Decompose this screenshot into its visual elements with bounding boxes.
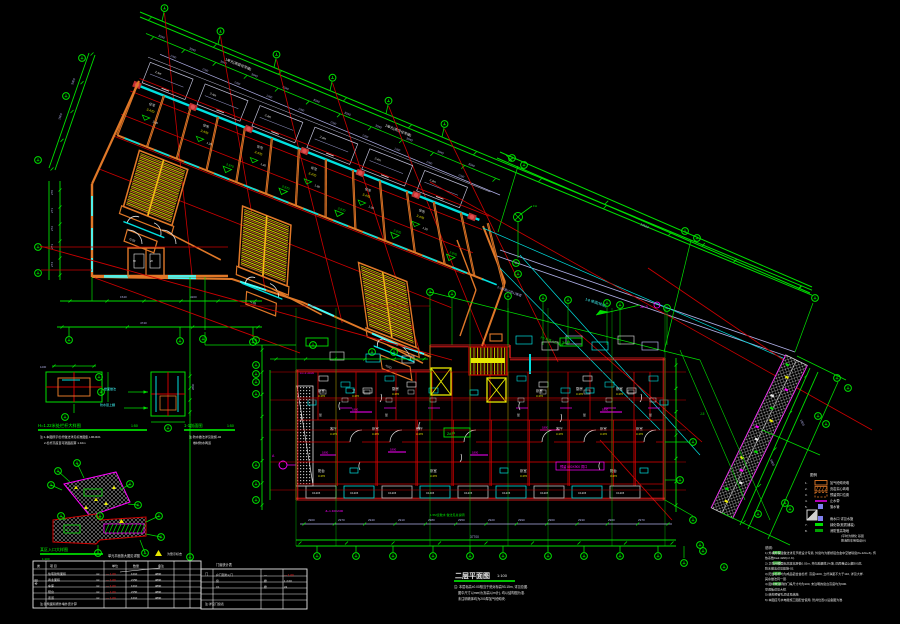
svg-text:JL-1 400x600: JL-1 400x600	[325, 509, 344, 513]
svg-text:3.470: 3.470	[610, 474, 617, 478]
svg-text:窗: 窗	[216, 579, 219, 583]
svg-text:走道: 走道	[48, 595, 54, 600]
svg-text:盥: 盥	[649, 413, 652, 417]
svg-text:卧室: 卧室	[318, 388, 325, 393]
svg-text:厨房: 厨房	[576, 386, 583, 391]
svg-text:图中尺寸以mm计(标高以m计), 均以结构图为准.: 图中尺寸以mm计(标高以m计), 均以结构图为准.	[458, 590, 525, 595]
svg-text:为警示标志: 为警示标志	[167, 551, 182, 556]
svg-text:W: W	[150, 259, 153, 263]
svg-text:阳台: 阳台	[610, 468, 617, 473]
svg-text:3200: 3200	[190, 295, 197, 299]
svg-text:1.: 1.	[805, 481, 808, 485]
svg-text:5) 结构预留孔洞详见结施.: 5) 结构预留孔洞详见结施.	[765, 592, 800, 597]
svg-text:273: 273	[50, 244, 54, 249]
svg-text:说明:: 说明:	[765, 545, 773, 550]
svg-text:商业面积: 商业面积	[48, 577, 60, 582]
svg-text:1540: 1540	[120, 295, 127, 299]
svg-text:3.470: 3.470	[318, 474, 325, 478]
svg-text:雨水口 详见水施: 雨水口 详见水施	[830, 516, 854, 521]
svg-text:3.470: 3.470	[372, 432, 379, 436]
svg-text:m²: m²	[96, 596, 99, 600]
svg-text:防水层上翻: 防水层上翻	[100, 402, 115, 407]
svg-text:— 1.00: — 1.00	[106, 590, 116, 594]
svg-text:户门及防火门: 户门及防火门	[216, 573, 233, 577]
svg-text:—: —	[264, 573, 267, 577]
svg-text:270: 270	[50, 190, 54, 195]
svg-text:4.: 4.	[805, 499, 808, 503]
svg-text:C1215: C1215	[616, 491, 625, 495]
svg-text:盥: 盥	[583, 413, 586, 417]
svg-text:m²: m²	[96, 578, 99, 582]
svg-text:— 1.00: — 1.00	[106, 596, 116, 600]
svg-text:2980: 2980	[428, 518, 435, 522]
svg-text:页岩实心砖墙: 页岩实心砖墙	[830, 486, 850, 491]
svg-text:C1: C1	[216, 585, 220, 589]
svg-text:2) 卫生间楼面标高较本层低0.02m, 并向地漏找1%坡,: 2) 卫生间楼面标高较本层低0.02m, 并向地漏找1%坡, 四周卷边上翻300…	[765, 560, 863, 565]
svg-text:2.栏杆高度自可踏面起算 1.10m: 2.栏杆高度自可踏面起算 1.10m	[44, 440, 86, 445]
svg-text:防水做法详见建施-02.: 防水做法详见建施-02.	[765, 566, 794, 571]
svg-text:卧室: 卧室	[520, 468, 527, 473]
svg-text:2.: 2.	[805, 487, 808, 491]
svg-text:注:详见门窗表: 注:详见门窗表	[205, 601, 224, 606]
svg-text:热系数K≤2.4W/(m²·K).: 热系数K≤2.4W/(m²·K).	[765, 555, 795, 560]
svg-text:1800: 1800	[322, 451, 329, 455]
svg-text:2960: 2960	[548, 518, 555, 522]
svg-text:阳台: 阳台	[48, 589, 54, 594]
svg-text:1-1剖面图: 1-1剖面图	[184, 422, 203, 429]
svg-text:C1215: C1215	[540, 491, 549, 495]
svg-text:1.5M宽散水 做法见总说明: 1.5M宽散水 做法见总说明	[430, 512, 465, 517]
svg-text:2150: 2150	[131, 590, 138, 594]
svg-text:注:防水做法详见建施-02: 注:防水做法详见建施-02	[189, 434, 222, 439]
svg-text:C1215: C1215	[350, 491, 359, 495]
svg-text:1:50: 1:50	[131, 424, 138, 428]
svg-text:盥: 盥	[319, 413, 322, 417]
svg-text:2900: 2900	[608, 518, 615, 522]
svg-text:m²: m²	[96, 584, 99, 588]
svg-text:类: 类	[37, 563, 40, 568]
svg-text:2920: 2920	[488, 518, 495, 522]
svg-text:3.470: 3.470	[520, 474, 527, 478]
svg-text:2910: 2910	[398, 518, 405, 522]
svg-text:2970: 2970	[338, 518, 345, 522]
svg-text:4890: 4890	[155, 572, 162, 576]
svg-text:3.470: 3.470	[556, 432, 563, 436]
svg-text:卧室: 卧室	[536, 388, 543, 393]
svg-text:5.: 5.	[805, 505, 808, 509]
svg-text:单位: 单位	[112, 563, 118, 568]
svg-text:绿化带(软质铺装): 绿化带(软质铺装)	[830, 522, 854, 527]
svg-text:图例: 图例	[810, 472, 818, 477]
svg-text:(平时为绿化 基层: (平时为绿化 基层	[841, 533, 864, 538]
svg-text:卧室: 卧室	[616, 386, 623, 391]
svg-text:4740: 4740	[140, 321, 147, 325]
svg-text:— 1.00: — 1.00	[106, 578, 116, 582]
svg-text:2900: 2900	[308, 518, 315, 522]
svg-text:H=1.22米处栏杆大样图: H=1.22米处栏杆大样图	[38, 422, 81, 429]
svg-text:2950: 2950	[458, 518, 465, 522]
svg-text:C1215: C1215	[502, 491, 511, 495]
svg-text:1:100: 1:100	[42, 557, 50, 561]
svg-text:3.470: 3.470	[352, 394, 359, 398]
svg-text:2940: 2940	[368, 518, 375, 522]
svg-text:空调板详见大样.: 空调板详见大样.	[765, 586, 787, 591]
svg-text:3.470: 3.470	[430, 474, 437, 478]
svg-text:W: W	[133, 259, 136, 263]
svg-text:车库: 车库	[48, 583, 54, 588]
svg-text:C1215: C1215	[464, 491, 473, 495]
svg-text:本层: 本层	[33, 579, 38, 585]
svg-text:某区入口大样图: 某区入口大样图	[40, 546, 68, 552]
svg-text:2800: 2800	[191, 383, 195, 390]
svg-text:3.: 3.	[805, 493, 808, 497]
svg-text:272: 272	[50, 226, 54, 231]
svg-text:3.470: 3.470	[536, 394, 543, 398]
svg-text:4890: 4890	[155, 584, 162, 588]
svg-text:7.: 7.	[805, 523, 808, 527]
svg-text:3.470: 3.470	[416, 432, 423, 436]
svg-text:1800: 1800	[602, 408, 609, 412]
svg-text:门: 门	[205, 571, 208, 576]
svg-text:单元平面放大图见详图: 单元平面放大图见详图	[108, 553, 140, 558]
svg-text:— 1.00: — 1.00	[284, 573, 294, 577]
svg-text:注:1.本图所示栏杆做法详见标准图集 L96J401: 注:1.本图所示栏杆做法详见标准图集 L96J401	[40, 434, 101, 439]
svg-text:数量: 数量	[133, 563, 139, 568]
svg-text:1210: 1210	[131, 572, 138, 576]
svg-text:1200: 1200	[40, 365, 47, 369]
svg-text:3) 阳台栏杆均为成品铝合金栏杆, 高度1100, 立杆净距: 3) 阳台栏杆均为成品铝合金栏杆, 高度1100, 立杆净距不大于110, 详见…	[765, 571, 864, 576]
svg-text:1800: 1800	[390, 448, 397, 452]
svg-text:A.1: A.1	[66, 528, 71, 532]
svg-text:3.470: 3.470	[318, 394, 325, 398]
svg-text:3.470: 3.470	[616, 392, 623, 396]
svg-text:樘: 樘	[264, 579, 267, 583]
svg-text:2930: 2930	[578, 518, 585, 522]
svg-text:厨房: 厨房	[392, 386, 399, 391]
svg-text:6) 本图应与水电暖施工图配合使用, 管井位置以设备图为准.: 6) 本图应与水电暖施工图配合使用, 管井位置以设备图为准.	[765, 597, 843, 602]
svg-text:盥: 盥	[385, 413, 388, 417]
svg-text:m²: m²	[96, 590, 99, 594]
svg-text:3.470: 3.470	[392, 392, 399, 396]
svg-text:4890: 4890	[155, 578, 162, 582]
svg-text:住宅建筑面积: 住宅建筑面积	[48, 571, 66, 576]
svg-text:C1215: C1215	[426, 491, 435, 495]
svg-text:1:100: 1:100	[497, 573, 508, 578]
svg-text:274: 274	[50, 262, 54, 267]
svg-text:C1215: C1215	[578, 491, 587, 495]
svg-text:其余做法同一层.: 其余做法同一层.	[765, 576, 787, 581]
svg-text:2990: 2990	[518, 518, 525, 522]
svg-text:1) 外墙外保温做法详见节能设计专篇, 外窗均为断桥铝合金中: 1) 外墙外保温做法详见节能设计专篇, 外窗均为断桥铝合金中空玻璃窗(6+12A…	[765, 550, 876, 555]
svg-text:注: 本层标高±0.00相当于绝对标高93.15m, 详见总: 注: 本层标高±0.00相当于绝对标高93.15m, 详见总图.	[454, 584, 528, 589]
svg-text:1210: 1210	[131, 596, 138, 600]
svg-text:C1215: C1215	[312, 491, 321, 495]
svg-text:FH: FH	[533, 204, 537, 208]
svg-text:4890: 4890	[155, 590, 162, 594]
svg-text:卧室: 卧室	[430, 468, 437, 473]
svg-text:未注明墙体均为200厚加气砼砌块.: 未注明墙体均为200厚加气砼砌块.	[458, 596, 506, 601]
svg-text:2#户: 2#户	[447, 430, 455, 436]
svg-text:卷材防水两道: 卷材防水两道	[193, 440, 211, 445]
svg-text:1800: 1800	[542, 426, 549, 430]
svg-text:消防登高场地: 消防登高场地	[830, 528, 850, 533]
svg-text:1800: 1800	[472, 451, 479, 455]
svg-text:m²: m²	[96, 572, 99, 576]
svg-text:J-5: J-5	[700, 412, 705, 416]
svg-text:3.470: 3.470	[636, 432, 643, 436]
svg-text:— 1.00: — 1.00	[106, 584, 116, 588]
svg-text:落水管: 落水管	[830, 504, 840, 509]
svg-text:1:50: 1:50	[227, 424, 234, 428]
svg-text:阳台: 阳台	[318, 468, 325, 473]
svg-text:2970: 2970	[638, 518, 645, 522]
svg-text:— 1.00: — 1.00	[106, 572, 116, 576]
svg-text:24: 24	[284, 585, 288, 589]
svg-text:注:建筑面积按外墙外皮计算: 注:建筑面积按外墙外皮计算	[40, 601, 77, 606]
svg-text:门窗统计表: 门窗统计表	[216, 562, 233, 567]
svg-text:盥: 盥	[517, 413, 520, 417]
svg-text:271: 271	[50, 208, 54, 213]
svg-text:按消防车荷载设计): 按消防车荷载设计)	[841, 538, 866, 543]
svg-text:1 2.00: 1 2.00	[284, 579, 292, 583]
svg-text:3.470: 3.470	[600, 432, 607, 436]
svg-text:楼面做法: 楼面做法	[104, 386, 116, 391]
svg-text:预留洞口位置: 预留洞口位置	[830, 492, 849, 497]
svg-text:加气砼砌块墙: 加气砼砌块墙	[830, 480, 850, 485]
svg-text:1800: 1800	[352, 408, 359, 412]
svg-text:备注: 备注	[158, 563, 164, 568]
svg-text:3.470: 3.470	[330, 432, 337, 436]
svg-text:3.470: 3.470	[576, 392, 583, 396]
svg-text:项 目: 项 目	[50, 564, 57, 568]
svg-text:4890: 4890	[155, 596, 162, 600]
svg-text:JL-3: JL-3	[640, 304, 649, 309]
svg-text:4) 图中未注明的门垛尺寸均为100, 未注明的窗台高度均为: 4) 图中未注明的门垛尺寸均为100, 未注明的窗台高度均为900.	[765, 581, 847, 586]
svg-text:37700: 37700	[470, 535, 479, 539]
svg-text:樘: 樘	[264, 585, 267, 589]
svg-text:3#户: 3#户	[562, 339, 570, 345]
svg-text:二层平面图: 二层平面图	[455, 571, 490, 580]
svg-text:C1215: C1215	[388, 491, 397, 495]
svg-text:预留 600X900 洞口: 预留 600X900 洞口	[560, 464, 587, 469]
svg-text:2150: 2150	[131, 578, 138, 582]
svg-text:止水带: 止水带	[830, 498, 840, 503]
svg-text:8.: 8.	[805, 529, 808, 533]
svg-text:1210: 1210	[131, 584, 138, 588]
